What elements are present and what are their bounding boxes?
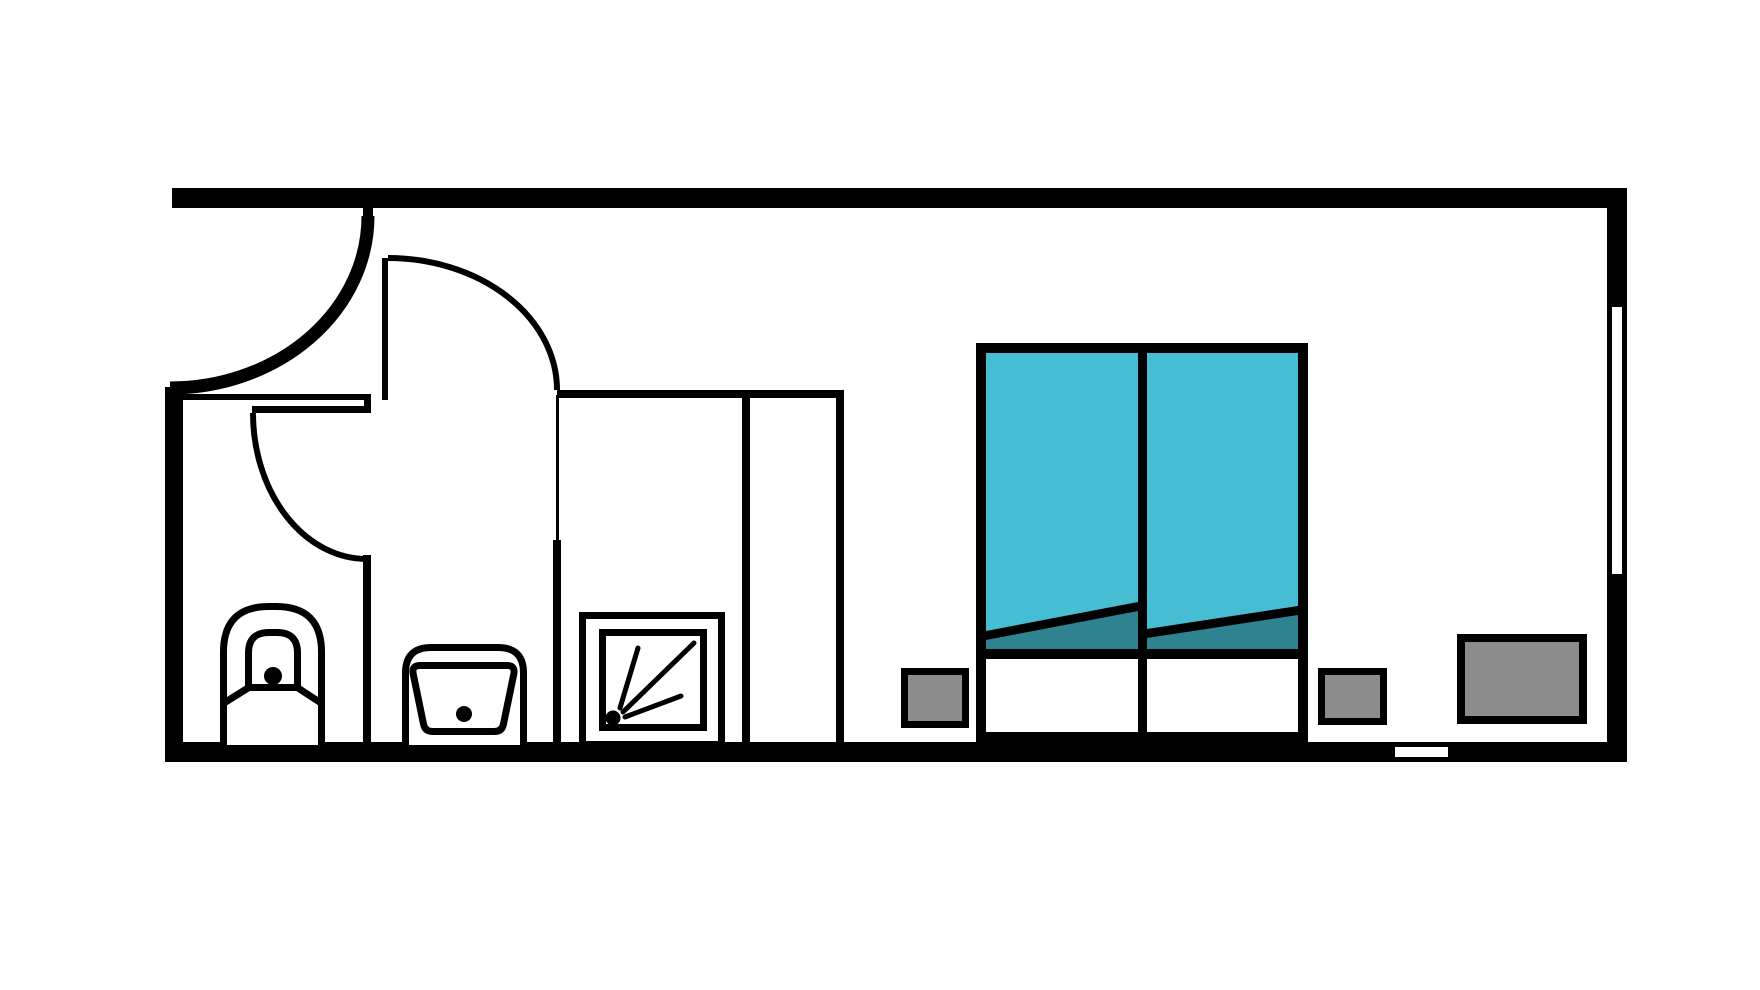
wall-top — [172, 188, 1627, 208]
hallway-door-leaf — [382, 258, 388, 400]
sink-drain-dot — [456, 706, 472, 722]
shower-partition-thin — [556, 395, 559, 542]
bathroom-wall-jamb — [364, 394, 371, 413]
hallway-wall — [557, 390, 844, 398]
shower-partition-thick — [553, 540, 561, 745]
bathroom-wall-outer — [165, 394, 368, 400]
window-right-wall — [1612, 307, 1622, 574]
duvet-left — [986, 353, 1138, 631]
nightstand-left — [901, 668, 969, 728]
sheet-right — [1147, 659, 1298, 732]
toilet — [224, 607, 322, 746]
wall-toilet-sink-divider — [363, 555, 371, 745]
nightstand-left-top — [908, 675, 962, 721]
wall-left — [165, 387, 183, 762]
closet-wall-right — [836, 390, 844, 745]
shower — [583, 616, 722, 745]
duvet-right — [1147, 353, 1298, 629]
nightstand-right-top — [1325, 675, 1380, 718]
hallway-door — [382, 258, 557, 400]
bathroom-door-arc — [253, 413, 367, 559]
bathroom-wall-inner — [252, 406, 371, 413]
double-bed — [976, 343, 1308, 742]
hallway-door-arc — [388, 258, 557, 390]
sink — [406, 648, 524, 746]
dresser — [1457, 634, 1587, 724]
entry-door — [170, 208, 373, 388]
floor-plan-canvas — [0, 0, 1760, 990]
entry-door-arc — [170, 216, 368, 388]
toilet-flush-dot — [264, 667, 282, 685]
shower-head-icon — [606, 711, 621, 726]
dresser-top — [1465, 642, 1579, 716]
threshold-bottom-wall — [1395, 747, 1448, 757]
sheet-left — [986, 659, 1138, 732]
floor-plan-svg — [0, 0, 1760, 990]
closet-wall-left — [742, 390, 750, 745]
nightstand-right — [1318, 668, 1387, 725]
